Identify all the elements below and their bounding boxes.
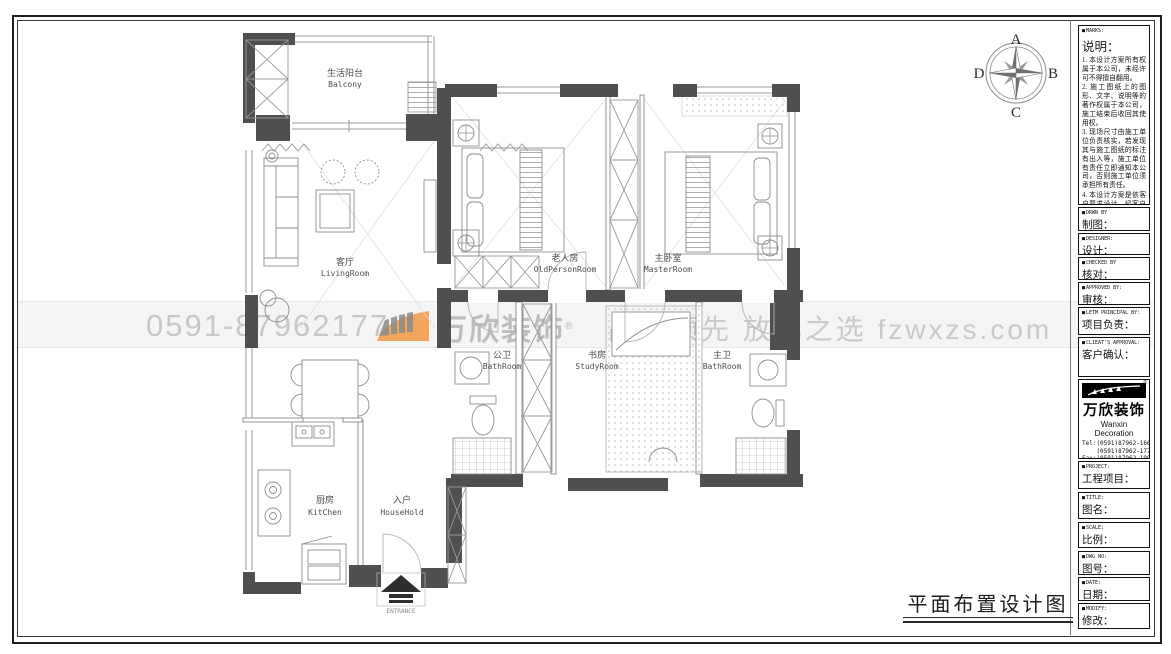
field-label-cn: 图名： xyxy=(1082,502,1146,517)
field-label-cn: 比例： xyxy=(1082,532,1146,547)
company-name-en: Wanxin Decoration xyxy=(1082,420,1146,438)
field-label-text: DWG NO: xyxy=(1086,554,1107,560)
field-label-text: DESIGNER: xyxy=(1086,236,1113,242)
titleblock-divider xyxy=(1070,20,1071,635)
drawing-sheet: { "sheet": { "title": "平面布置设计图", "compas… xyxy=(0,0,1171,654)
company-name-cn: 万欣装饰 xyxy=(1082,399,1146,420)
bullet-square-icon: ■ xyxy=(1082,260,1085,266)
bullet-square-icon: ■ xyxy=(1082,28,1085,34)
bullet-square-icon: ■ xyxy=(1082,606,1085,612)
field-label-en: ■PROJECT: xyxy=(1082,464,1146,470)
field-label-en: ■APPROVED BY: xyxy=(1082,285,1146,291)
marks-note: 2. 施工图纸上的图形、文字、说明等的著作权属于本公司，施工结束后收回其使用权。 xyxy=(1082,84,1146,128)
field-label-text: APPROVED BY: xyxy=(1086,285,1122,291)
marks-label-en: ■MARKS: xyxy=(1082,28,1146,34)
bullet-square-icon: ■ xyxy=(1082,285,1085,291)
sheet-border-inner xyxy=(17,20,1155,637)
company-section: ® 万欣装饰 Wanxin Decoration Tel:(0591)87962… xyxy=(1078,379,1150,459)
field-label-cn: 工程项目： xyxy=(1082,471,1146,486)
field-label-cn: 制图： xyxy=(1082,217,1146,231)
field-project: ■PROJECT: 工程项目： xyxy=(1078,461,1150,489)
company-logo-swoosh-icon xyxy=(1082,383,1146,398)
bullet-square-icon: ■ xyxy=(1082,580,1085,586)
marks-label-cn: 说明： xyxy=(1082,36,1146,55)
field-label-text: CLIEAT'S APPROVAL: xyxy=(1086,340,1140,346)
field-label-en: ■DRWN BY xyxy=(1082,210,1146,216)
sheet-title-underline xyxy=(903,617,1073,618)
field-label-text: MODIFY: xyxy=(1086,606,1107,612)
field-label-en: ■CHECKED BY xyxy=(1082,260,1146,266)
field-label-en: ■SCALE: xyxy=(1082,525,1146,531)
field-label-cn: 核对： xyxy=(1082,267,1146,280)
bullet-square-icon: ■ xyxy=(1082,340,1085,346)
field-label-text: TITLE: xyxy=(1086,495,1104,501)
field-date: ■DATE: 日期： xyxy=(1078,577,1150,601)
marks-label-text: MARKS: xyxy=(1086,28,1104,34)
bullet-square-icon: ■ xyxy=(1082,525,1085,531)
field-client-approval: ■CLIEAT'S APPROVAL: 客户确认： xyxy=(1078,337,1150,377)
marks-section: ■MARKS: 说明： 1. 本设计方案所有权属于本公司，未经许可不得擅自翻用。… xyxy=(1078,25,1150,205)
field-label-text: DATE: xyxy=(1086,580,1101,586)
field-label-en: ■TITLE: xyxy=(1082,495,1146,501)
field-label-cn: 日期： xyxy=(1082,587,1146,601)
field-drawn-by: ■DRWN BY 制图： xyxy=(1078,207,1150,231)
field-label-text: CHECKED BY xyxy=(1086,260,1116,266)
field-label-text: PROJECT: xyxy=(1086,464,1110,470)
field-label-en: ■MODIFY: xyxy=(1082,606,1146,612)
bullet-square-icon: ■ xyxy=(1082,554,1085,560)
bullet-square-icon: ■ xyxy=(1082,310,1085,316)
company-reg-mark: ® xyxy=(1143,380,1147,386)
marks-note: 1. 本设计方案所有权属于本公司，未经许可不得擅自翻用。 xyxy=(1082,57,1146,83)
field-label-text: SCALE: xyxy=(1086,525,1104,531)
field-label-en: ■DWG NO: xyxy=(1082,554,1146,560)
field-title: ■TITLE: 图名： xyxy=(1078,492,1150,519)
bullet-square-icon: ■ xyxy=(1082,236,1085,242)
bullet-square-icon: ■ xyxy=(1082,210,1085,216)
bullet-square-icon: ■ xyxy=(1082,495,1085,501)
field-label-text: LETM PRINCIPAL BY: xyxy=(1086,310,1140,316)
company-tel2: (0591)87962-177 xyxy=(1082,448,1150,455)
field-label-text: DRWN BY xyxy=(1086,210,1107,216)
field-label-en: ■CLIEAT'S APPROVAL: xyxy=(1082,340,1146,346)
field-label-en: ■LETM PRINCIPAL BY: xyxy=(1082,310,1146,316)
field-modify: ■MODIFY: 修改： xyxy=(1078,603,1150,629)
company-logo: ® xyxy=(1082,383,1146,398)
field-checked-by: ■CHECKED BY 核对： xyxy=(1078,257,1150,280)
marks-note: 4. 本设计方案是依客户要求设计，经客户签字即视为同意认可，不得随意更改。 xyxy=(1082,192,1146,205)
field-designer: ■DESIGNER: 设计： xyxy=(1078,233,1150,255)
field-label-cn: 审核： xyxy=(1082,292,1146,305)
marks-note: 3. 现场尺寸由施工单位负责核实，若发现其与施工图纸的标注有出入等，施工单位有责… xyxy=(1082,129,1146,191)
field-label-cn: 修改： xyxy=(1082,613,1146,628)
field-label-en: ■DESIGNER: xyxy=(1082,236,1146,242)
field-label-cn: 图号： xyxy=(1082,561,1146,575)
bullet-square-icon: ■ xyxy=(1082,464,1085,470)
company-tel1: Tel:(0591)87962-166 xyxy=(1082,440,1150,447)
company-fax: Fax:(0591)87962-199 xyxy=(1082,455,1150,459)
field-approved-by: ■APPROVED BY: 审核： xyxy=(1078,282,1150,305)
field-label-en: ■DATE: xyxy=(1082,580,1146,586)
field-scale: ■SCALE: 比例： xyxy=(1078,522,1150,548)
field-label-cn: 客户确认： xyxy=(1082,347,1146,362)
field-principal: ■LETM PRINCIPAL BY: 项目负责： xyxy=(1078,307,1150,335)
company-contacts: Tel:(0591)87962-166 (0591)87962-177Fax:(… xyxy=(1082,440,1146,459)
field-dwg-no: ■DWG NO: 图号： xyxy=(1078,551,1150,575)
field-label-cn: 项目负责： xyxy=(1082,317,1146,332)
field-label-cn: 设计： xyxy=(1082,243,1146,255)
